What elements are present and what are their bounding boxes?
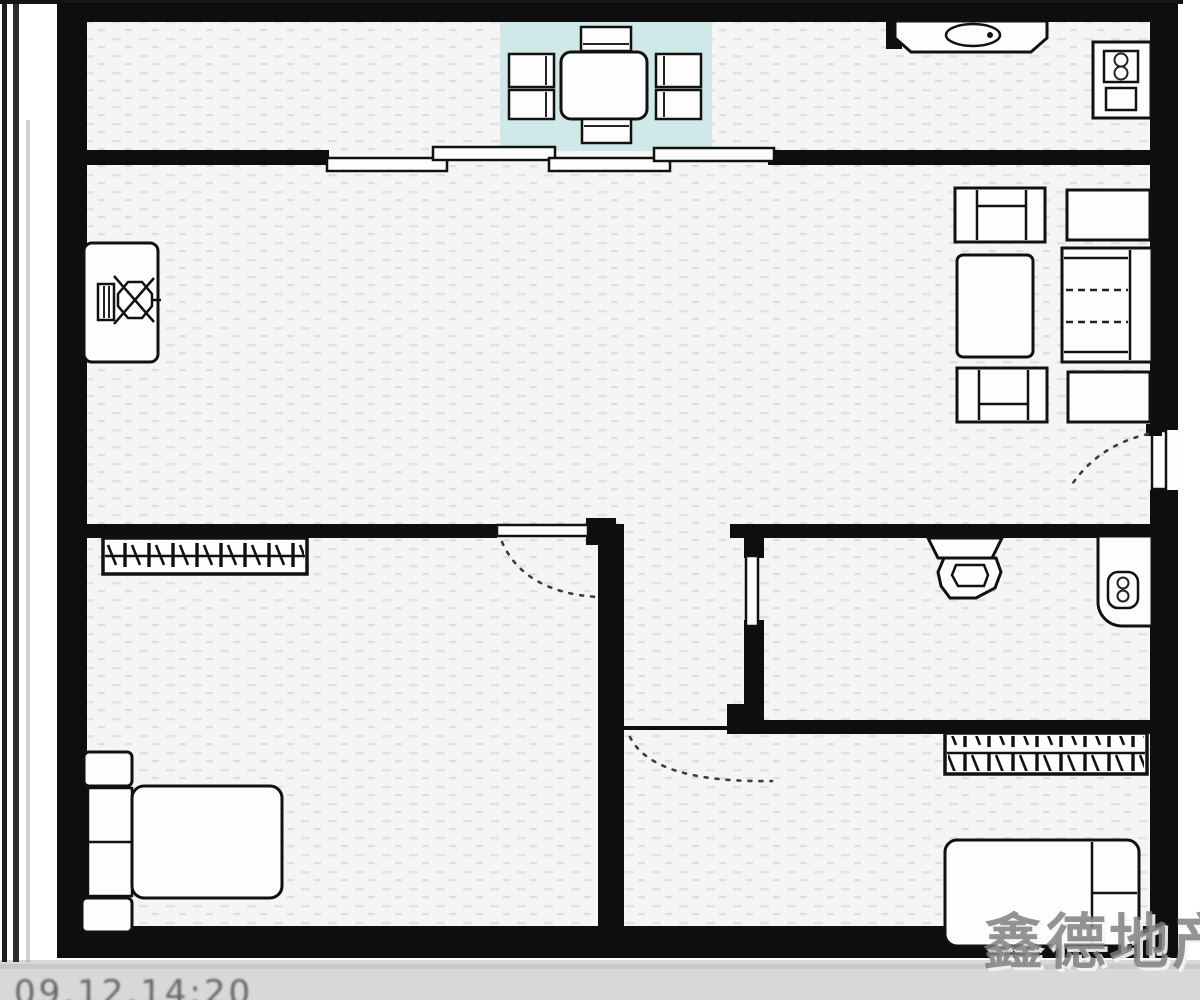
scan-edge-line-1 [2, 0, 7, 962]
toilet-bowl-inner [952, 565, 988, 586]
nightstand [82, 898, 132, 932]
cooktop-oven [1106, 88, 1136, 110]
wall-bedroom1-right [598, 524, 624, 958]
wall-slide-rail-right [768, 150, 1152, 165]
dining-chair-right-1 [656, 54, 701, 87]
door-leaf-bathroom [746, 556, 758, 626]
wall-slide-rail-left [87, 150, 329, 165]
sliding-door-panel [433, 147, 555, 160]
wall-top [57, 3, 1178, 22]
dining-chair-right-2 [656, 90, 701, 119]
kitchen-sink-drain [987, 32, 993, 38]
wall-bathroom-top [730, 524, 1152, 538]
scan-edge-line-2 [13, 0, 19, 962]
side-table-bottom [1068, 372, 1150, 422]
wall-bathroom-left-lower [744, 620, 764, 734]
kitchen-sink-counter [895, 21, 1047, 52]
watermark-text: 鑫德地产 [983, 908, 1200, 978]
entry-door-leaf [1152, 431, 1166, 489]
floor-plan-svg: 鑫德地产 鑫德地产 09.12.14:20 [0, 0, 1200, 1000]
armchair-bottom [957, 368, 1047, 422]
scan-edge-line-3 [26, 120, 30, 962]
armchair-top [955, 188, 1045, 242]
sofa [1062, 248, 1152, 362]
nightstand [84, 752, 132, 786]
dining-chair-left-2 [509, 90, 554, 119]
toilet-tank [928, 538, 1002, 558]
sliding-door-panel [654, 148, 774, 161]
tv-cabinet [84, 243, 161, 362]
coffee-table [957, 255, 1033, 357]
wall-bedroom1-top [87, 524, 497, 538]
door-leaf-bedroom2-closed [624, 726, 730, 730]
watermark: 鑫德地产 鑫德地产 [983, 908, 1200, 981]
wall-left [57, 3, 87, 958]
sliding-door-panel [327, 158, 447, 171]
bed-bedroom1 [132, 786, 282, 898]
dining-table [561, 52, 647, 119]
sliding-door-panel [549, 158, 670, 171]
timestamp-text: 09.12.14:20 [14, 973, 253, 1000]
dining-chair-top [581, 27, 631, 51]
floor-plan-photo: 鑫德地产 鑫德地产 09.12.14:20 [0, 0, 1200, 1000]
dining-chair-bottom [582, 119, 631, 143]
side-table-top [1067, 190, 1150, 240]
door-frame-bedroom1 [497, 525, 588, 536]
dining-chair-left-1 [509, 54, 554, 87]
